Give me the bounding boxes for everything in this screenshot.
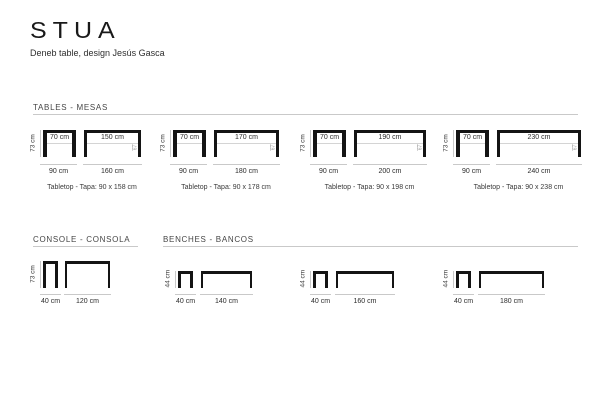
front-bottom-dim-label: 90 cm (40, 168, 77, 175)
section-rule-console (33, 246, 138, 247)
brand-logo: STUA (30, 18, 121, 45)
console-leg (108, 264, 110, 288)
front-bottom-dim-label: 40 cm (175, 298, 196, 305)
front-bottom-dim-label: 40 cm (453, 298, 474, 305)
bench-leg (325, 274, 328, 288)
front-top-dim-label: 70 cm (173, 134, 206, 141)
front-top-dim-line (177, 143, 202, 144)
console-leg (55, 264, 58, 288)
front-bottom-dim-line (175, 294, 196, 295)
side-top-dim-line (217, 143, 276, 144)
table-front-view: 70 cm (43, 130, 76, 157)
section-title-tables: TABLES - MESAS (33, 103, 108, 112)
side-bottom-dim-line (83, 164, 142, 165)
side-top-dim-label: 190 cm (354, 134, 426, 141)
side-bottom-dim-line (64, 294, 111, 295)
rotated-mark: 67 (272, 145, 277, 151)
table-side-view: 190 cm 67 (354, 130, 426, 157)
table-group-4: 73 cm 70 cm 230 cm 67 90 cm 240 cm Table… (443, 128, 585, 196)
bench-leg (542, 274, 544, 288)
front-bottom-dim-line (40, 294, 61, 295)
side-bottom-dim-line (496, 164, 582, 165)
height-dim-line (310, 271, 311, 288)
front-bottom-dim-line (453, 164, 490, 165)
side-bottom-dim-label: 180 cm (478, 298, 545, 305)
front-top-dim-line (460, 143, 485, 144)
bench-leg (250, 274, 252, 288)
front-bottom-dim-label: 90 cm (453, 168, 490, 175)
side-bottom-dim-label: 160 cm (83, 168, 142, 175)
table-front-view: 70 cm (173, 130, 206, 157)
bench-front-view (313, 271, 328, 288)
bench-group-2: 44 cm 40 cm 160 cm (300, 256, 402, 308)
front-top-dim-line (47, 143, 72, 144)
section-title-benches: BENCHES - BANCOS (163, 235, 254, 244)
height-dim-line (310, 130, 311, 157)
front-bottom-dim-line (40, 164, 77, 165)
table-group-2: 73 cm 70 cm 170 cm 67 90 cm 180 cm Table… (160, 128, 283, 196)
side-top-dim-line (500, 143, 578, 144)
height-dim-label: 73 cm (300, 130, 308, 157)
bench-front-view (178, 271, 193, 288)
side-bottom-dim-line (200, 294, 253, 295)
brand-subtitle: Deneb table, design Jesús Gasca (30, 48, 165, 58)
bench-leg (468, 274, 471, 288)
height-dim-label: 73 cm (160, 130, 168, 157)
front-bottom-dim-line (170, 164, 207, 165)
height-dim-label: 44 cm (443, 271, 451, 288)
bench-leg (479, 274, 481, 288)
side-bottom-dim-label: 180 cm (213, 168, 280, 175)
rotated-mark: 67 (134, 145, 139, 151)
height-dim-line (170, 130, 171, 157)
side-bottom-dim-line (213, 164, 280, 165)
side-bottom-dim-label: 120 cm (64, 298, 111, 305)
table-front-view: 70 cm (456, 130, 489, 157)
table-side-view: 230 cm 67 (497, 130, 581, 157)
table-group-3: 73 cm 70 cm 190 cm 67 90 cm 200 cm Table… (300, 128, 430, 196)
bench-leg (178, 274, 181, 288)
bench-group-3: 44 cm 40 cm 180 cm (443, 256, 553, 308)
table-side-view: 170 cm 67 (214, 130, 279, 157)
front-bottom-dim-label: 90 cm (310, 168, 347, 175)
bench-side-view (336, 271, 394, 288)
height-dim-label: 44 cm (165, 271, 173, 288)
spec-sheet-page: STUA Deneb table, design Jesús Gasca TAB… (0, 0, 600, 400)
bench-group-1: 44 cm 40 cm 140 cm (165, 256, 260, 308)
tabletop-caption: Tabletop - Tapa: 90 x 158 cm (43, 184, 141, 191)
side-top-dim-label: 150 cm (84, 134, 141, 141)
bench-leg (456, 274, 459, 288)
table-group-1: 73 cm 70 cm 150 cm 67 90 cm 160 cm Table… (30, 128, 145, 196)
bench-leg (201, 274, 203, 288)
console-side-view (65, 261, 110, 288)
table-front-view: 70 cm (313, 130, 346, 157)
console-leg (65, 264, 67, 288)
front-bottom-dim-line (453, 294, 474, 295)
side-bottom-dim-label: 160 cm (335, 298, 395, 305)
height-dim-label: 73 cm (30, 261, 38, 288)
tabletop-caption: Tabletop - Tapa: 90 x 238 cm (456, 184, 581, 191)
side-bottom-dim-label: 200 cm (353, 168, 427, 175)
side-top-dim-label: 170 cm (214, 134, 279, 141)
height-dim-label: 73 cm (443, 130, 451, 157)
front-bottom-dim-line (310, 164, 347, 165)
bench-side-view (479, 271, 544, 288)
section-rule-benches (163, 246, 578, 247)
side-bottom-dim-line (353, 164, 427, 165)
front-bottom-dim-label: 40 cm (40, 298, 61, 305)
bench-leg (190, 274, 193, 288)
height-dim-label: 44 cm (300, 271, 308, 288)
console-leg (43, 264, 46, 288)
height-dim-line (175, 271, 176, 288)
side-top-dim-line (357, 143, 423, 144)
front-top-dim-label: 70 cm (43, 134, 76, 141)
side-top-dim-label: 230 cm (497, 134, 581, 141)
height-dim-line (453, 271, 454, 288)
bench-side-view (201, 271, 252, 288)
rotated-mark: 67 (574, 145, 579, 151)
bench-leg (336, 274, 338, 288)
front-top-dim-label: 70 cm (313, 134, 346, 141)
height-dim-line (453, 130, 454, 157)
bench-front-view (456, 271, 471, 288)
bench-leg (392, 274, 394, 288)
section-rule-tables (33, 114, 578, 115)
front-bottom-dim-label: 90 cm (170, 168, 207, 175)
height-dim-label: 73 cm (30, 130, 38, 157)
rotated-mark: 67 (419, 145, 424, 151)
side-bottom-dim-label: 240 cm (496, 168, 582, 175)
tabletop-caption: Tabletop - Tapa: 90 x 178 cm (173, 184, 279, 191)
bench-leg (313, 274, 316, 288)
front-bottom-dim-label: 40 cm (310, 298, 331, 305)
front-bottom-dim-line (310, 294, 331, 295)
tabletop-caption: Tabletop - Tapa: 90 x 198 cm (313, 184, 426, 191)
height-dim-line (40, 130, 41, 157)
side-bottom-dim-line (335, 294, 395, 295)
console-front-view (43, 261, 58, 288)
front-top-dim-label: 70 cm (456, 134, 489, 141)
side-top-dim-line (87, 143, 138, 144)
front-top-dim-line (317, 143, 342, 144)
side-bottom-dim-label: 140 cm (200, 298, 253, 305)
console-group: 73 cm 40 cm 120 cm (30, 256, 120, 308)
side-bottom-dim-line (478, 294, 545, 295)
table-side-view: 150 cm 67 (84, 130, 141, 157)
height-dim-line (40, 261, 41, 288)
section-title-console: CONSOLE - CONSOLA (33, 235, 130, 244)
